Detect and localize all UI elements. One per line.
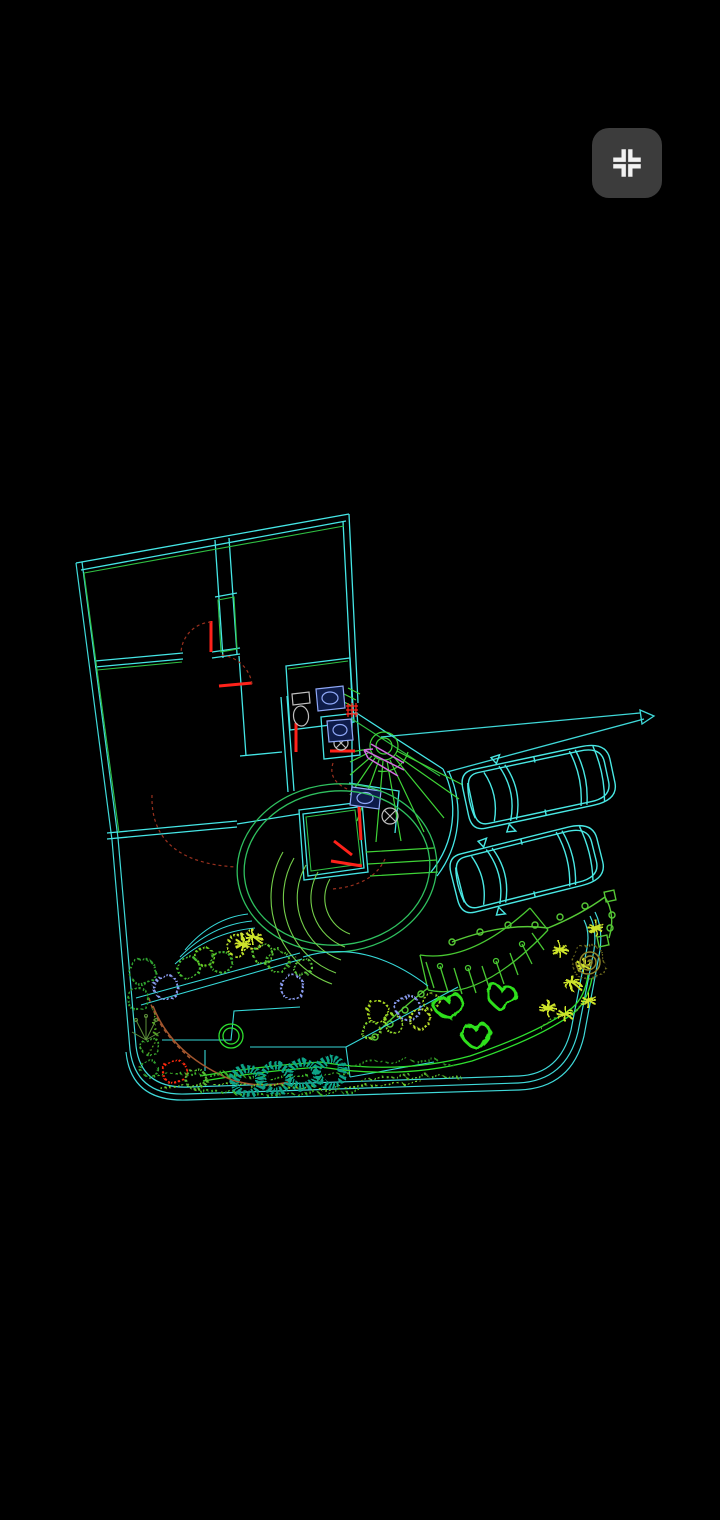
driveway (381, 710, 654, 772)
pergola (420, 908, 548, 994)
patio-circle (229, 774, 445, 962)
building-walls (76, 514, 458, 880)
stepping-stones (433, 985, 516, 1050)
garden-edge-curves (200, 975, 592, 1081)
fit-to-screen-icon (608, 144, 646, 182)
parking-cars (445, 732, 621, 924)
cad-canvas[interactable] (0, 0, 720, 1520)
zoom-extents-button[interactable] (592, 128, 662, 198)
toilet (292, 692, 310, 727)
door-leaves (211, 621, 362, 866)
curved-staircase (340, 688, 463, 876)
spiral-tree (571, 945, 605, 979)
branch-plant (132, 1015, 160, 1041)
drain-hatch (346, 703, 358, 717)
bathroom-fixtures (292, 686, 398, 824)
cad-drawing (0, 0, 720, 1520)
garden-paths (136, 952, 458, 1077)
